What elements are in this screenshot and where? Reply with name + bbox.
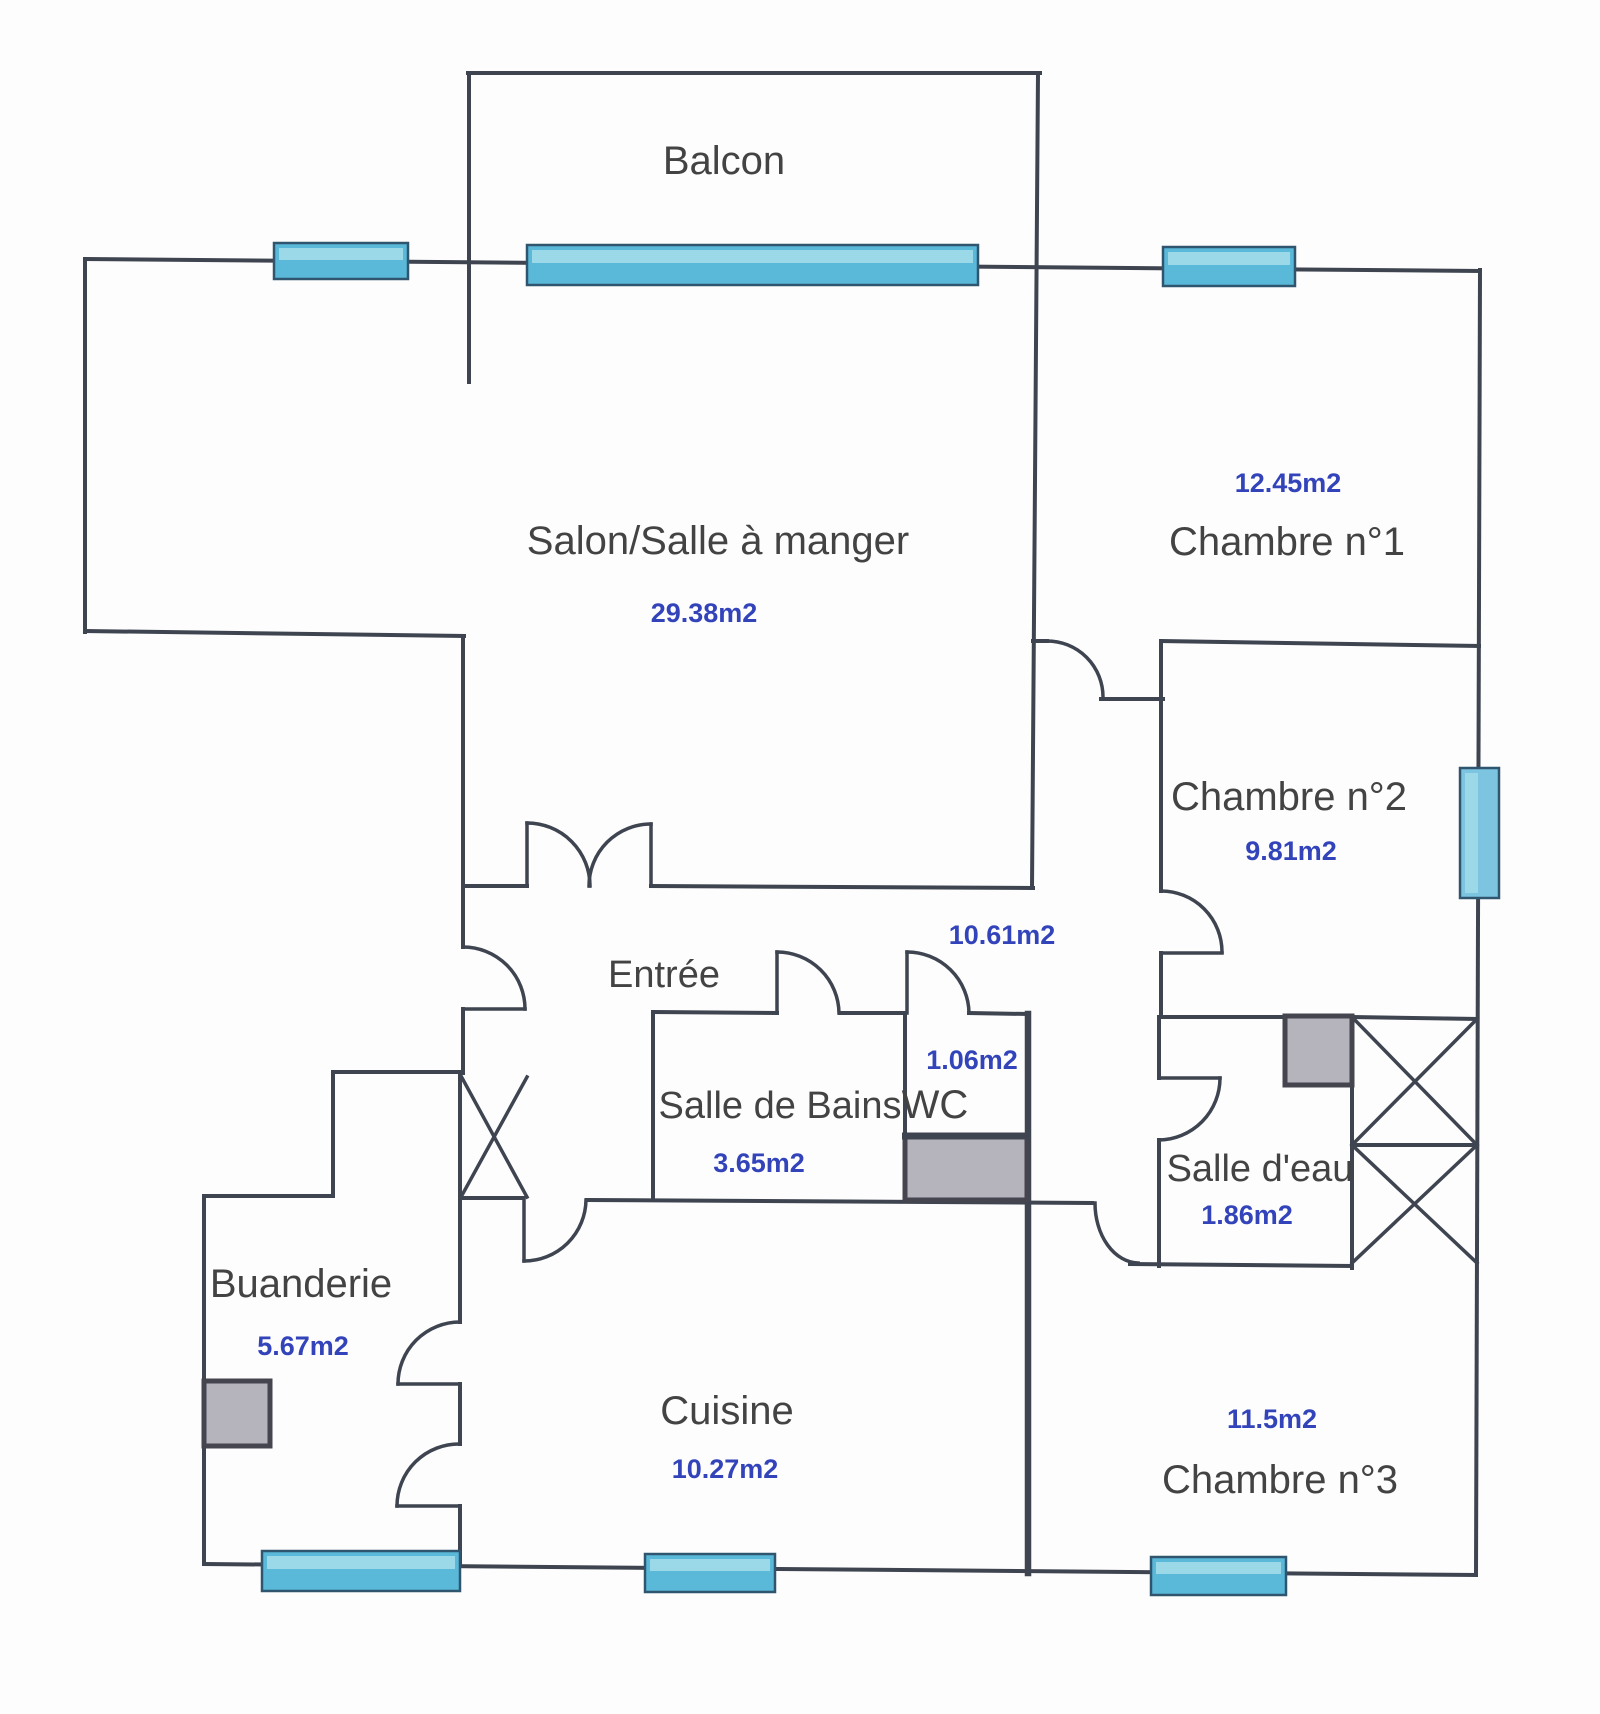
svg-text:9.81m2: 9.81m2 <box>1245 836 1337 866</box>
svg-text:Chambre n°3: Chambre n°3 <box>1162 1458 1398 1502</box>
svg-text:10.27m2: 10.27m2 <box>672 1454 779 1484</box>
svg-text:10.61m2: 10.61m2 <box>949 920 1056 950</box>
svg-text:Buanderie: Buanderie <box>210 1262 392 1306</box>
svg-text:1.86m2: 1.86m2 <box>1201 1200 1293 1230</box>
svg-text:Chambre n°2: Chambre n°2 <box>1171 775 1407 819</box>
svg-text:11.5m2: 11.5m2 <box>1227 1404 1317 1434</box>
svg-text:5.67m2: 5.67m2 <box>257 1331 349 1361</box>
svg-text:Cuisine: Cuisine <box>660 1389 793 1433</box>
svg-text:1.06m2: 1.06m2 <box>926 1045 1018 1075</box>
svg-text:Chambre n°1: Chambre n°1 <box>1169 520 1405 564</box>
svg-text:Balcon: Balcon <box>663 139 785 183</box>
svg-text:Salle d'eau: Salle d'eau <box>1167 1148 1354 1190</box>
svg-text:Entrée: Entrée <box>608 954 720 996</box>
svg-text:29.38m2: 29.38m2 <box>651 598 758 628</box>
svg-text:Salle de Bains: Salle de Bains <box>659 1085 902 1127</box>
svg-text:3.65m2: 3.65m2 <box>713 1148 805 1178</box>
svg-text:12.45m2: 12.45m2 <box>1235 468 1342 498</box>
svg-text:Salon/Salle à manger: Salon/Salle à manger <box>527 519 909 563</box>
svg-text:WC: WC <box>902 1083 969 1127</box>
